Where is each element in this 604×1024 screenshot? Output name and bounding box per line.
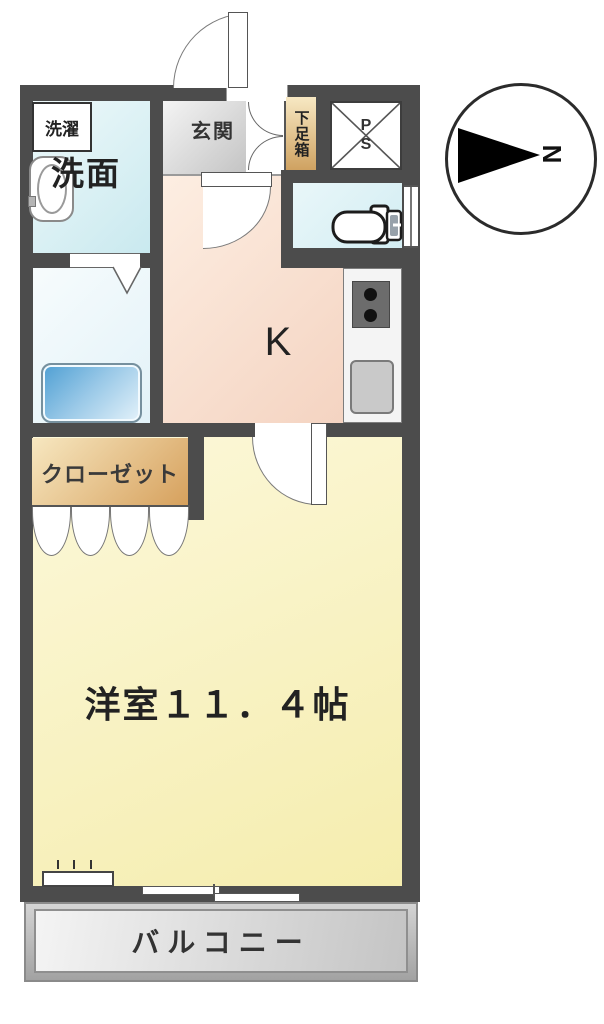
floor-plan: 洗濯 P S 下足箱 — [0, 0, 604, 1024]
washroom-label-text: 洗面 — [51, 147, 121, 195]
toilet-window — [404, 185, 418, 248]
wall-washroom-right — [150, 101, 163, 437]
kitchen-door-leaf — [201, 172, 272, 187]
compass-north-text: N — [537, 145, 568, 164]
western-room-label: 洋室１１．４帖 — [33, 678, 402, 726]
laundry-label: 洗濯 — [45, 115, 79, 140]
wall-closet-stub — [188, 437, 204, 520]
wall-ps-left — [316, 101, 330, 170]
kitchen-label: K — [254, 318, 302, 366]
washroom-label: 洗面 — [36, 150, 136, 192]
kitchen-sink-icon — [350, 360, 394, 414]
western-room-label-text: 洋室１１．４帖 — [84, 676, 350, 728]
laundry-box: 洗濯 — [32, 102, 92, 152]
wall-toilet-bottom — [281, 248, 402, 268]
wall-toilet-top — [281, 170, 402, 183]
toilet-icon — [331, 204, 403, 246]
shoe-cabinet-label: 下足箱 — [291, 110, 312, 158]
kitchen-label-text: K — [265, 320, 292, 365]
closet-label: クローゼット — [32, 438, 188, 507]
balcony-label: バルコニー — [34, 909, 408, 973]
wall-room-top — [20, 423, 402, 437]
shoe-cabinet-box: 下足箱 — [286, 97, 316, 170]
room-door-leaf — [311, 423, 327, 505]
stove-icon — [352, 281, 390, 328]
burner-icon — [364, 288, 377, 301]
pipe-space-box: P S — [330, 101, 402, 170]
ps-label: P S — [332, 103, 400, 168]
ps-letter-s: S — [361, 136, 372, 154]
compass-needle-icon — [458, 128, 540, 183]
window-glass-line — [410, 187, 412, 246]
entrance-label-text: 玄関 — [191, 115, 235, 144]
vent-tick — [57, 860, 59, 869]
balcony-sliding-door-panel — [142, 886, 220, 895]
closet-label-text: クローゼット — [41, 457, 179, 489]
bathtub-icon — [41, 363, 142, 423]
balcony-label-text: バルコニー — [131, 921, 310, 961]
compass-north-label: N — [536, 138, 568, 170]
washbasin-faucet-icon — [28, 196, 36, 207]
ps-letter-p: P — [361, 117, 372, 135]
wall-toilet-left — [281, 183, 293, 248]
burner-icon — [364, 309, 377, 322]
shoe-cabinet-face-line — [284, 101, 286, 170]
vent-tick — [73, 860, 75, 869]
balcony-sliding-door-panel — [214, 893, 300, 902]
entrance-door-leaf — [228, 12, 248, 88]
entrance-label: 玄関 — [178, 116, 248, 142]
wall-bath-door-left — [33, 253, 70, 268]
vent-tick — [90, 860, 92, 869]
bathroom-folding-door-icon — [111, 266, 143, 296]
sliding-door-mark — [213, 884, 215, 896]
small-window — [42, 871, 114, 887]
